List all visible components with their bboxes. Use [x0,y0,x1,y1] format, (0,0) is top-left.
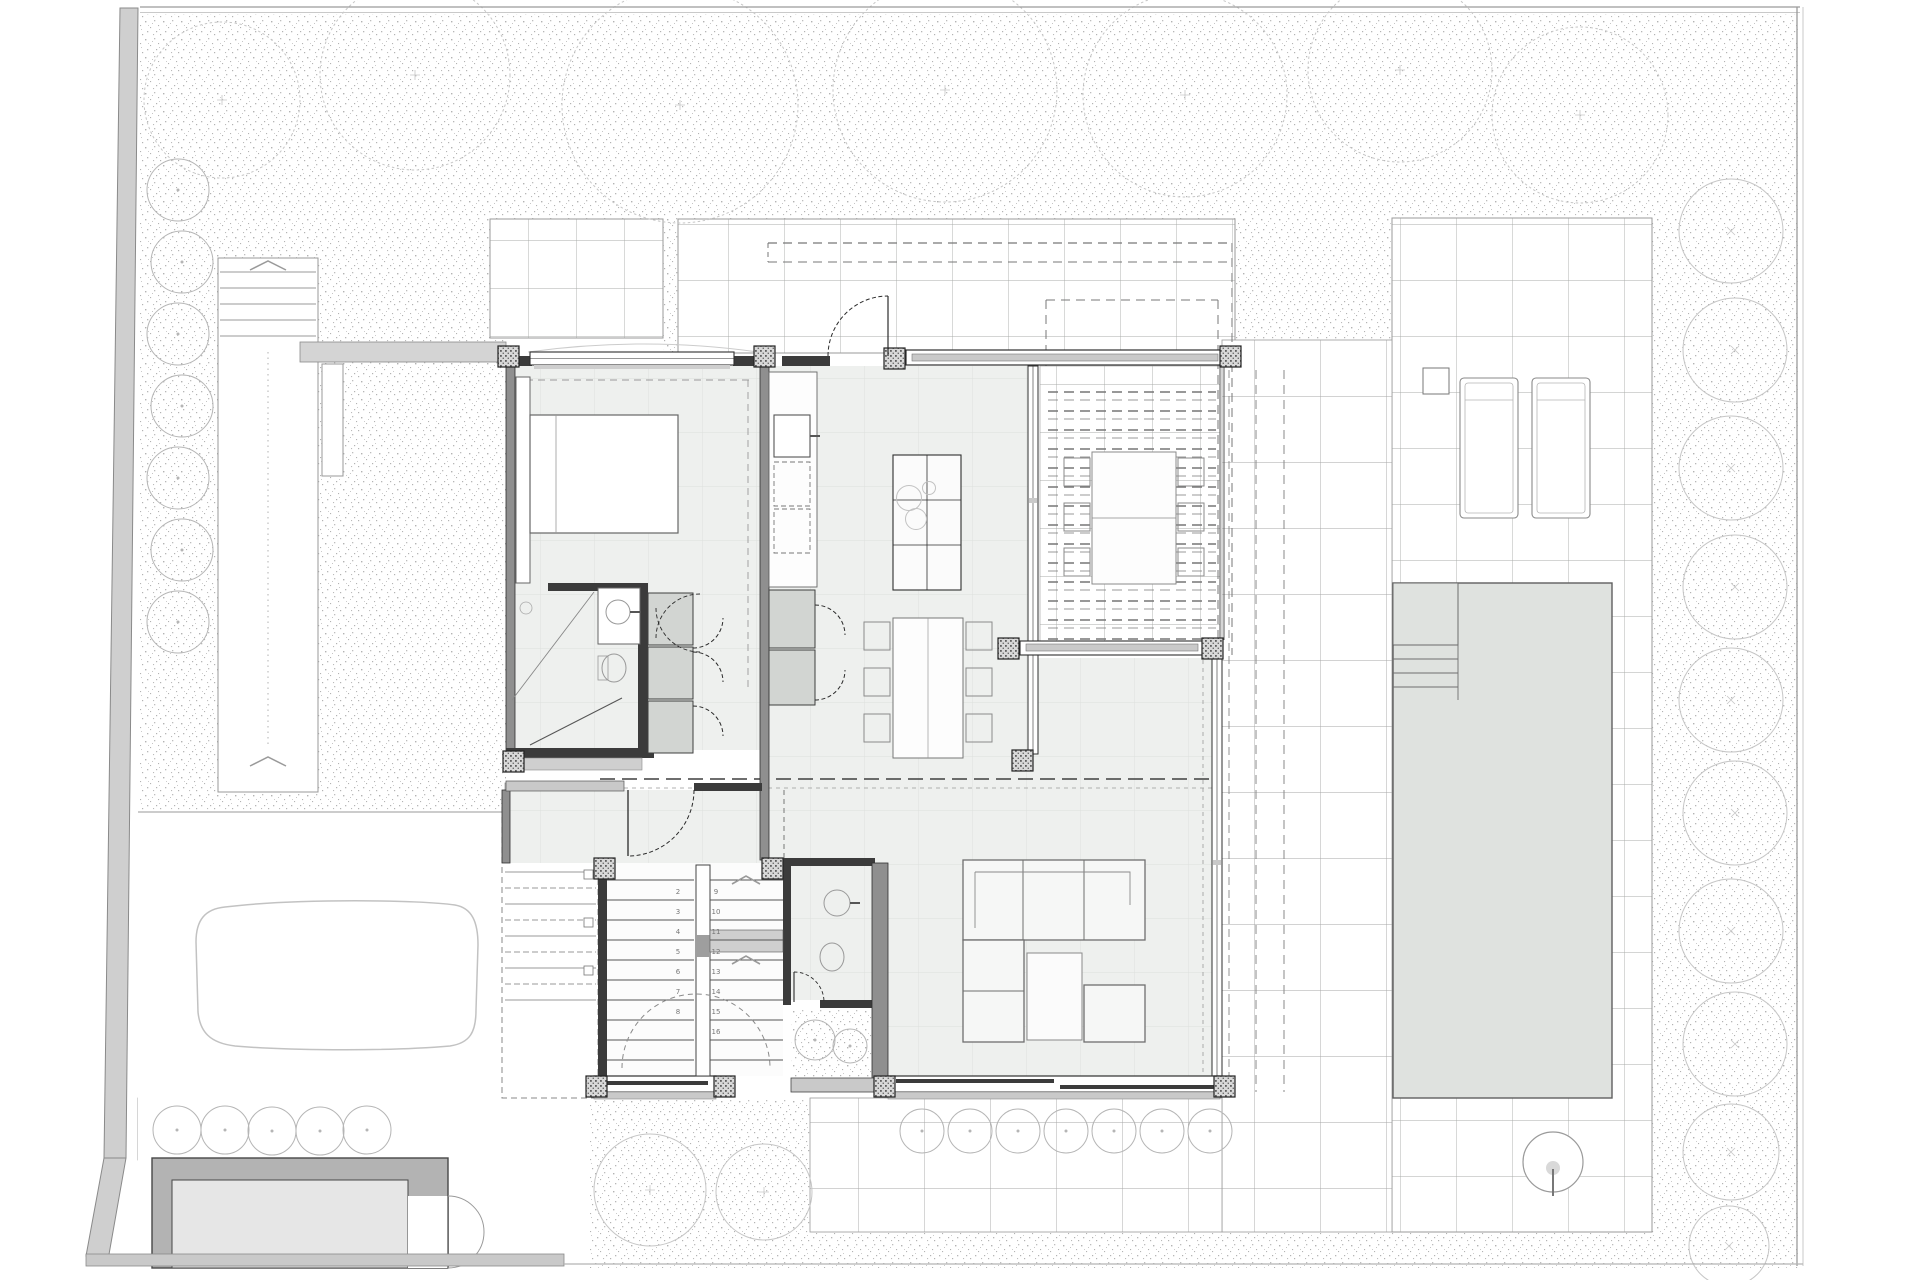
garden-west [140,225,506,812]
bush-center-mark [921,1130,924,1133]
bush-center-mark [1113,1130,1116,1133]
stair-floor [607,863,783,1076]
bush-center-mark [177,189,180,192]
stair-step-number: 16 [712,1028,721,1036]
bush-center-mark [1161,1130,1164,1133]
sun-lounger-1 [1460,378,1518,518]
hall-west-wall [502,790,510,863]
dining-east-glass [1028,366,1038,754]
stair-step-number: 3 [676,908,680,916]
stair-landing-step [710,930,783,952]
stair-step-number: 7 [676,988,680,996]
stair-step-number: 13 [712,968,721,976]
bush-center-mark [814,1039,817,1042]
east-paving [1222,340,1392,1232]
stair-stringer-block [696,935,710,957]
garden-bottom-band [810,1232,1652,1268]
stair-step-number: 11 [712,928,721,936]
stair-step-number: 9 [714,888,718,896]
bush-center-mark [271,1130,274,1133]
living-floor-upper [1028,658,1212,863]
stair-step-number: 15 [712,1008,721,1016]
sun-lounger-2 [1532,378,1590,518]
column [503,751,524,772]
bath-south-wall [506,748,654,758]
stair-step-number: 14 [712,988,721,996]
bush-center-mark [177,333,180,336]
stair-step-number: 4 [676,928,681,936]
bush-center-mark [319,1130,322,1133]
stair-step-number: 5 [676,948,680,956]
column [586,1076,607,1097]
bush-center-mark [176,1129,179,1132]
garden-patio-gap [663,219,680,353]
bush-center-mark [366,1129,369,1132]
car [196,901,478,1050]
living-north-window [1020,641,1204,655]
coffee-table [1027,953,1082,1040]
garage [152,1158,484,1268]
garden-wall-stub [322,364,343,476]
column [754,346,775,367]
wc-south-wall [820,1000,875,1008]
living-east-glass [1212,655,1222,1078]
column [874,1076,895,1097]
walkway-path [218,258,318,792]
garden-bottom-center [590,1098,810,1268]
stair-step-number: 12 [712,948,721,956]
column [1012,750,1033,771]
bush-center-mark [1065,1130,1068,1133]
ensuite-vanity [598,588,640,644]
garden-top-band [140,14,1798,225]
patio-a [490,219,663,338]
column [1202,638,1223,659]
kitchen-sink [774,415,810,457]
terrace-north-window [906,350,1224,365]
stair-step-number: 8 [676,1008,680,1016]
boundary-south-wall [86,1254,564,1266]
column [1214,1076,1235,1097]
ramp-tick-3 [584,918,593,927]
hall-floor [506,790,769,863]
pool-steps [1393,583,1458,645]
column [498,346,519,367]
kitchen-island [893,455,961,590]
hall-north-wall-e [694,783,762,791]
bush-center-mark [224,1129,227,1132]
bush-center-mark [849,1045,852,1048]
stair-step-number: 10 [712,908,721,916]
wc-floor [791,865,872,1000]
column [594,858,615,879]
stair-west-wall [598,863,607,1078]
stair-wc-wall [783,865,791,1005]
column [998,638,1019,659]
bedroom-west-wall [506,352,515,752]
bush-center-mark [1209,1130,1212,1133]
stair-step-number: 6 [676,968,681,976]
hall-north-threshold [506,781,624,791]
bush-center-mark [177,477,180,480]
deck-utility-box [1423,368,1449,394]
bush-center-mark [969,1130,972,1133]
stair-step-number: 2 [676,888,680,896]
south-path [810,1098,1222,1232]
column [884,348,905,369]
garden-low-wall [300,342,506,362]
ramp-tick-4 [584,966,593,975]
living-west-wall [872,863,888,1078]
courtyard-planter [791,1008,872,1078]
column [714,1076,735,1097]
porch-step-band [518,758,642,770]
column [762,858,783,879]
column [1220,346,1241,367]
living-south-slider [888,1076,1220,1099]
ramp-tick-2 [584,870,593,879]
wc-north-wall [783,858,875,866]
garden-ne-gap [1235,225,1392,340]
bush-center-mark [177,621,180,624]
patio-b [678,219,1235,353]
bedroom-north-window [530,352,734,369]
bush-center-mark [1017,1130,1020,1133]
stair-stringer [696,865,710,1076]
bush-center-mark [181,405,184,408]
pool [1393,583,1612,1098]
kitchen-north-wall [782,356,830,366]
bush-center-mark [181,261,184,264]
floor-plan-canvas: 2345678910111213141516 [0,0,1920,1280]
bush-center-mark [181,549,184,552]
stairs-south-window [594,1076,716,1099]
